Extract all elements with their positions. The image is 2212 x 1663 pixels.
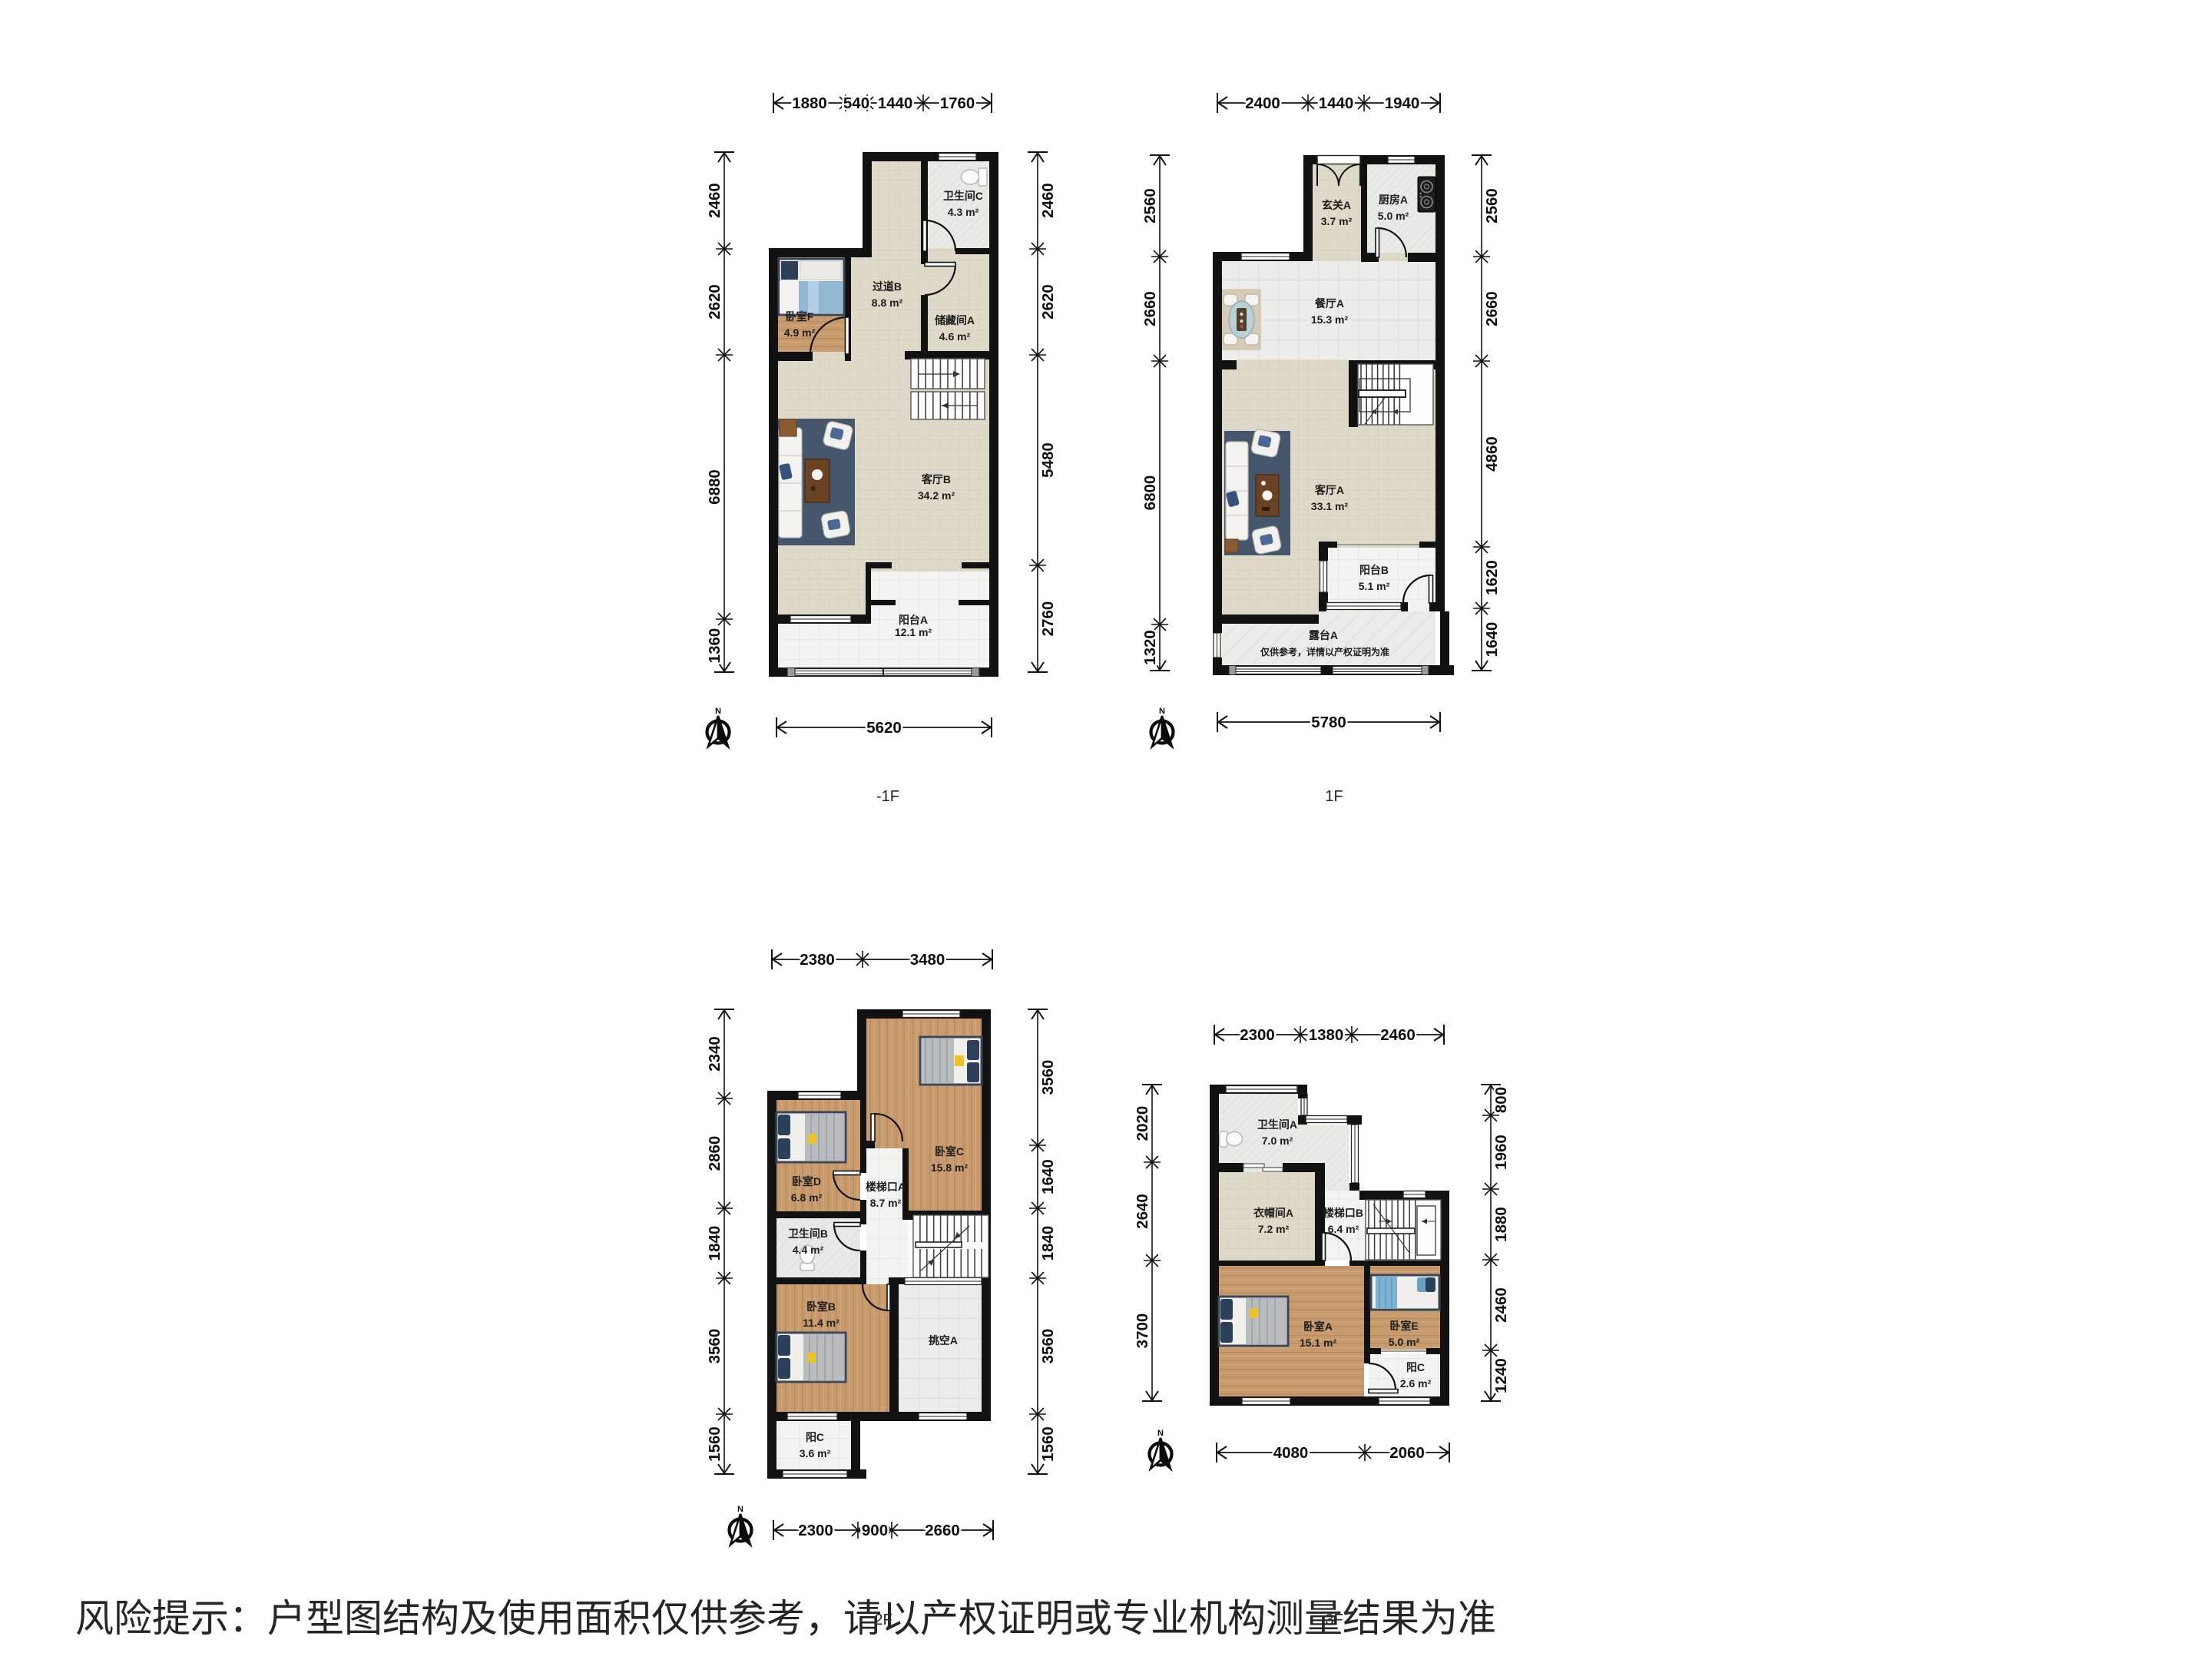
- svg-text:1840: 1840: [706, 1226, 724, 1261]
- svg-text:挑空A: 挑空A: [929, 1334, 958, 1347]
- svg-text:900: 900: [862, 1522, 888, 1539]
- svg-text:15.1 m²: 15.1 m²: [1300, 1337, 1337, 1349]
- svg-text:2460: 2460: [1380, 1026, 1416, 1044]
- svg-text:1760: 1760: [940, 94, 975, 112]
- svg-text:4.9 m²: 4.9 m²: [784, 326, 816, 339]
- svg-text:阳台A: 阳台A: [899, 614, 928, 626]
- svg-text:4.4 m²: 4.4 m²: [793, 1244, 824, 1256]
- svg-text:1640: 1640: [1483, 622, 1501, 658]
- svg-text:15.8 m²: 15.8 m²: [931, 1161, 969, 1174]
- svg-text:N: N: [1157, 1429, 1164, 1438]
- svg-text:2300: 2300: [1240, 1026, 1275, 1044]
- svg-text:1620: 1620: [1483, 560, 1501, 595]
- svg-text:6.8 m²: 6.8 m²: [791, 1191, 823, 1204]
- svg-text:3560: 3560: [706, 1329, 724, 1364]
- svg-text:4.3 m²: 4.3 m²: [948, 206, 979, 218]
- svg-text:N: N: [1159, 707, 1165, 716]
- svg-text:N: N: [715, 707, 721, 716]
- svg-text:3.7 m²: 3.7 m²: [1321, 215, 1353, 227]
- svg-text:卫生间C: 卫生间C: [943, 190, 983, 202]
- svg-text:2660: 2660: [1141, 291, 1159, 326]
- svg-text:7.2 m²: 7.2 m²: [1258, 1223, 1290, 1235]
- svg-text:2060: 2060: [1389, 1444, 1425, 1462]
- svg-text:卧室C: 卧室C: [935, 1145, 964, 1158]
- svg-text:1440: 1440: [878, 94, 913, 112]
- svg-text:11.4 m²: 11.4 m²: [803, 1317, 839, 1329]
- svg-text:2020: 2020: [1134, 1106, 1151, 1141]
- svg-text:2460: 2460: [1492, 1287, 1510, 1323]
- svg-text:衣帽间A: 衣帽间A: [1253, 1207, 1293, 1219]
- svg-text:5780: 5780: [1311, 714, 1346, 731]
- svg-text:卧室D: 卧室D: [792, 1175, 821, 1188]
- svg-text:阳C: 阳C: [806, 1431, 824, 1443]
- svg-text:卫生间B: 卫生间B: [788, 1227, 828, 1240]
- svg-text:餐厅A: 餐厅A: [1314, 297, 1344, 310]
- svg-text:厨房A: 厨房A: [1379, 194, 1408, 206]
- svg-text:-1F: -1F: [876, 788, 899, 805]
- svg-text:5620: 5620: [866, 719, 902, 737]
- svg-text:1880: 1880: [1492, 1207, 1510, 1242]
- svg-text:1380: 1380: [1309, 1026, 1344, 1044]
- svg-text:2460: 2460: [1039, 183, 1057, 218]
- svg-text:仅供参考，详情以产权证明为准: 仅供参考，详情以产权证明为准: [1260, 646, 1389, 658]
- svg-text:540: 540: [843, 94, 869, 112]
- svg-text:2660: 2660: [1483, 291, 1501, 326]
- svg-text:3560: 3560: [1039, 1329, 1057, 1364]
- svg-text:储藏间A: 储藏间A: [934, 314, 975, 326]
- svg-text:玄关A: 玄关A: [1322, 199, 1351, 211]
- svg-text:N: N: [737, 1505, 743, 1514]
- svg-text:卧室A: 卧室A: [1303, 1320, 1333, 1333]
- svg-text:5.1 m²: 5.1 m²: [1359, 580, 1390, 592]
- svg-text:2620: 2620: [706, 284, 724, 320]
- svg-text:1640: 1640: [1039, 1159, 1057, 1194]
- svg-text:3700: 3700: [1134, 1314, 1151, 1349]
- svg-text:风险提示：户型图结构及使用面积仅供参考，请以产权证明或专业机: 风险提示：户型图结构及使用面积仅供参考，请以产权证明或专业机构测量结果为准: [75, 1597, 1496, 1640]
- svg-text:楼梯口B: 楼梯口B: [1323, 1207, 1363, 1219]
- svg-text:4860: 4860: [1483, 436, 1501, 472]
- svg-text:1840: 1840: [1039, 1226, 1057, 1261]
- svg-text:楼梯口A: 楼梯口A: [866, 1181, 906, 1193]
- svg-text:2760: 2760: [1039, 601, 1057, 637]
- svg-text:8.8 m²: 8.8 m²: [872, 296, 903, 309]
- svg-text:2640: 2640: [1134, 1194, 1151, 1229]
- svg-text:3.6 m²: 3.6 m²: [800, 1447, 831, 1459]
- svg-text:2620: 2620: [1039, 284, 1057, 320]
- svg-text:客厅A: 客厅A: [1314, 484, 1344, 496]
- svg-text:6.4 m²: 6.4 m²: [1328, 1223, 1359, 1235]
- svg-text:5.0 m²: 5.0 m²: [1389, 1336, 1420, 1348]
- svg-text:卧室F: 卧室F: [786, 310, 814, 323]
- svg-text:6800: 6800: [1141, 475, 1159, 511]
- svg-text:1320: 1320: [1141, 630, 1159, 665]
- svg-text:2400: 2400: [1245, 94, 1280, 112]
- svg-text:2860: 2860: [706, 1136, 724, 1171]
- svg-text:1560: 1560: [1039, 1426, 1057, 1462]
- svg-text:1960: 1960: [1492, 1135, 1510, 1170]
- svg-text:3560: 3560: [1039, 1060, 1057, 1095]
- svg-text:2560: 2560: [1141, 188, 1159, 224]
- svg-text:3480: 3480: [910, 951, 945, 969]
- svg-text:2560: 2560: [1483, 188, 1501, 224]
- svg-text:客厅B: 客厅B: [921, 473, 951, 485]
- svg-text:1940: 1940: [1385, 94, 1420, 112]
- svg-text:4.6 m²: 4.6 m²: [939, 330, 971, 343]
- svg-text:7.0 m²: 7.0 m²: [1262, 1135, 1293, 1147]
- svg-text:阳台B: 阳台B: [1359, 564, 1389, 576]
- svg-text:15.3 m²: 15.3 m²: [1311, 313, 1349, 326]
- svg-text:5.0 m²: 5.0 m²: [1378, 210, 1409, 222]
- svg-text:过道B: 过道B: [873, 280, 902, 293]
- svg-text:2460: 2460: [706, 183, 724, 218]
- svg-text:卧室B: 卧室B: [806, 1300, 836, 1313]
- svg-text:2300: 2300: [798, 1522, 833, 1539]
- svg-text:1F: 1F: [1325, 788, 1343, 805]
- svg-text:34.2 m²: 34.2 m²: [918, 489, 955, 502]
- svg-text:6880: 6880: [706, 469, 724, 505]
- svg-text:2380: 2380: [800, 951, 835, 969]
- svg-text:2.6 m²: 2.6 m²: [1400, 1377, 1432, 1390]
- svg-text:12.1 m²: 12.1 m²: [895, 626, 932, 638]
- svg-text:1440: 1440: [1319, 94, 1354, 112]
- svg-text:2660: 2660: [925, 1522, 960, 1539]
- svg-text:阳C: 阳C: [1406, 1361, 1425, 1373]
- svg-text:露台A: 露台A: [1309, 629, 1338, 641]
- svg-text:1240: 1240: [1492, 1358, 1510, 1393]
- svg-text:1360: 1360: [706, 628, 724, 664]
- svg-text:卧室E: 卧室E: [1389, 1320, 1418, 1332]
- svg-text:4080: 4080: [1273, 1444, 1309, 1462]
- svg-text:800: 800: [1492, 1087, 1510, 1113]
- svg-text:1560: 1560: [706, 1426, 724, 1462]
- svg-text:8.7 m²: 8.7 m²: [870, 1197, 902, 1209]
- svg-text:33.1 m²: 33.1 m²: [1311, 500, 1349, 512]
- svg-text:1880: 1880: [792, 94, 827, 112]
- svg-text:卫生间A: 卫生间A: [1257, 1118, 1297, 1131]
- svg-text:5480: 5480: [1039, 442, 1057, 478]
- svg-text:2340: 2340: [706, 1036, 724, 1072]
